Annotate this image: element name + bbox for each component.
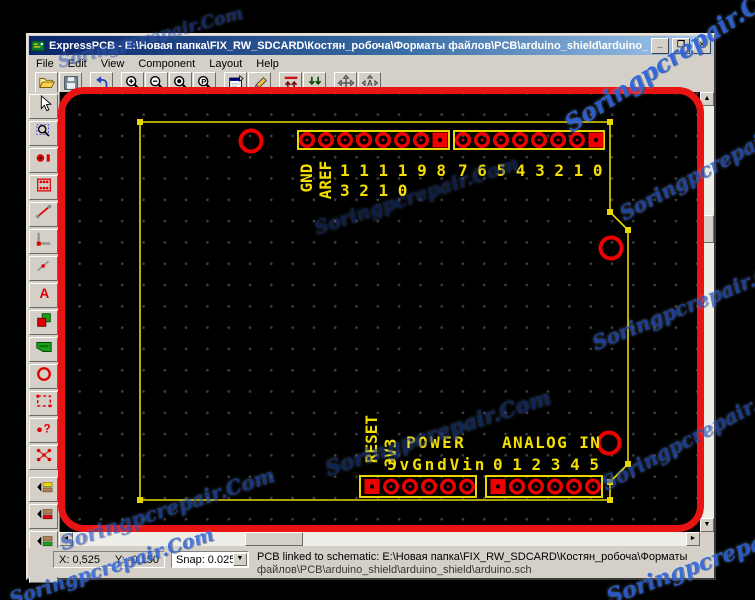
scrollbar-corner bbox=[700, 532, 714, 546]
layer-silkscreen-button[interactable] bbox=[29, 477, 58, 502]
pad bbox=[476, 134, 489, 147]
menu-view[interactable]: View bbox=[94, 56, 132, 72]
tool-ratsnest-button[interactable] bbox=[29, 445, 58, 470]
text-tool-icon: A bbox=[34, 284, 54, 307]
menu-bar: File Edit View Component Layout Help bbox=[29, 55, 713, 72]
zoom-in-icon bbox=[124, 74, 142, 92]
cursor-coordinates-panel: X: 0,525 Y: -0,150 bbox=[53, 551, 165, 568]
pad bbox=[533, 134, 546, 147]
pad bbox=[552, 134, 565, 147]
zoom-board-icon bbox=[172, 74, 190, 92]
component-edit-button[interactable] bbox=[248, 72, 271, 94]
svg-text:A: A bbox=[39, 286, 49, 301]
pan-button[interactable] bbox=[334, 72, 357, 94]
segment-icon bbox=[34, 257, 54, 280]
silkscreen-layer-icon bbox=[34, 478, 54, 501]
svg-text:?: ? bbox=[43, 423, 50, 436]
pad bbox=[442, 480, 455, 493]
pad bbox=[530, 480, 543, 493]
maximize-button[interactable]: ❐ bbox=[672, 38, 690, 54]
digital-pins-right[interactable]: 7 6 5 4 3 2 1 0 bbox=[458, 161, 603, 180]
properties-dialog-icon bbox=[227, 74, 245, 92]
tool-palette: A ? bbox=[28, 92, 59, 578]
label-analog-pins[interactable]: 0 1 2 3 4 5 bbox=[493, 455, 599, 474]
pad bbox=[404, 480, 417, 493]
pad bbox=[457, 134, 470, 147]
floppy-icon bbox=[62, 74, 80, 92]
zoom-to-board-button[interactable] bbox=[169, 72, 192, 94]
zoom-previous-icon: P bbox=[196, 74, 214, 92]
tool-trace-button[interactable] bbox=[29, 202, 58, 227]
pad-square bbox=[365, 479, 380, 494]
menu-help[interactable]: Help bbox=[249, 56, 286, 72]
tool-zoom-window-button[interactable] bbox=[29, 121, 58, 146]
snap-value: Snap: 0.025" bbox=[176, 554, 239, 566]
zoom-window-icon bbox=[34, 122, 54, 145]
view-top-layer-button[interactable] bbox=[279, 72, 302, 94]
connector-bottom-left[interactable] bbox=[360, 476, 476, 497]
top-layer-arrows-icon bbox=[282, 74, 300, 92]
pad bbox=[339, 134, 352, 147]
scroll-down-button[interactable]: ▼ bbox=[700, 518, 714, 532]
pan-auto-button[interactable]: A bbox=[358, 72, 381, 94]
menu-file[interactable]: File bbox=[29, 56, 61, 72]
tool-board-outline-button[interactable] bbox=[29, 391, 58, 416]
label-power-pins[interactable]: 5vGndVin bbox=[387, 455, 487, 474]
bottom-layer-arrows-icon bbox=[306, 74, 324, 92]
zoom-previous-button[interactable]: P bbox=[193, 72, 216, 94]
scroll-right-button[interactable]: ► bbox=[686, 532, 700, 546]
pad-icon bbox=[34, 149, 54, 172]
open-folder-icon bbox=[38, 74, 56, 92]
status-message-line2: файлов\PCB\arduino_shield\arduino_shield… bbox=[257, 564, 710, 576]
digital-pins-row1[interactable]: 1 1 1 1 9 8 bbox=[340, 161, 446, 180]
cursor-y: Y: -0,150 bbox=[115, 554, 159, 566]
top-copper-layer-icon bbox=[34, 505, 54, 528]
find-pad-icon: ? bbox=[34, 419, 54, 442]
pad bbox=[377, 134, 390, 147]
snap-grid-dropdown[interactable]: Snap: 0.025" ▼ bbox=[171, 551, 249, 568]
pad bbox=[415, 134, 428, 147]
zoom-out-icon bbox=[148, 74, 166, 92]
label-aref[interactable]: AREF bbox=[316, 161, 335, 200]
pcb-canvas[interactable]: GND AREF 1 1 1 1 9 8 3 2 1 0 7 6 5 4 3 2… bbox=[59, 92, 700, 532]
pad bbox=[549, 480, 562, 493]
dropdown-arrow-icon[interactable]: ▼ bbox=[233, 553, 247, 566]
window-title: ExpressPCB - E:\Новая папка\FIX_RW_SDCAR… bbox=[49, 40, 648, 52]
pad-square bbox=[433, 133, 448, 148]
pencil-icon bbox=[251, 74, 269, 92]
tool-select-button[interactable] bbox=[29, 94, 58, 119]
pad bbox=[423, 480, 436, 493]
vertical-scrollbar[interactable]: ▲ ▼ bbox=[700, 92, 714, 532]
scroll-left-button[interactable]: ◄ bbox=[59, 532, 73, 546]
corner-icon bbox=[34, 230, 54, 253]
minimize-button[interactable]: _ bbox=[651, 38, 669, 54]
cursor-x: X: 0,525 bbox=[59, 554, 100, 566]
pad bbox=[514, 134, 527, 147]
pan-arrows-icon bbox=[337, 74, 355, 92]
open-button[interactable] bbox=[35, 72, 58, 94]
tool-circle-button[interactable] bbox=[29, 364, 58, 389]
tool-segment-button[interactable] bbox=[29, 256, 58, 281]
view-bottom-layer-button[interactable] bbox=[303, 72, 326, 94]
label-reset[interactable]: RESET bbox=[362, 415, 381, 463]
pad bbox=[320, 134, 333, 147]
digital-pins-row2[interactable]: 3 2 1 0 bbox=[340, 181, 407, 200]
svg-text:A: A bbox=[366, 79, 372, 88]
pad bbox=[461, 480, 474, 493]
pad bbox=[587, 480, 600, 493]
pan-auto-icon: A bbox=[361, 74, 379, 92]
connector-bottom-right[interactable] bbox=[486, 476, 602, 497]
component-footprint-icon bbox=[34, 176, 54, 199]
pad bbox=[358, 134, 371, 147]
pad-square bbox=[491, 479, 506, 494]
screenshot-root: ExpressPCB - E:\Новая папка\FIX_RW_SDCAR… bbox=[0, 0, 755, 600]
tool-component-button[interactable] bbox=[29, 175, 58, 200]
horizontal-scrollbar[interactable]: ◄ ► bbox=[59, 532, 700, 546]
tool-power-plane-button[interactable] bbox=[29, 337, 58, 362]
tool-find-pad-button[interactable]: ? bbox=[29, 418, 58, 443]
status-message-line1: PCB linked to schematic: E:\Новая папка\… bbox=[257, 551, 710, 564]
scroll-up-button[interactable]: ▲ bbox=[700, 92, 714, 106]
undo-arrow-icon bbox=[93, 74, 111, 92]
status-message: PCB linked to schematic: E:\Новая папка\… bbox=[257, 551, 710, 576]
tool-pad-button[interactable] bbox=[29, 148, 58, 173]
expresspcb-window: ExpressPCB - E:\Новая папка\FIX_RW_SDCAR… bbox=[26, 33, 716, 580]
pad bbox=[495, 134, 508, 147]
layer-top-copper-button[interactable] bbox=[29, 504, 58, 529]
zoom-out-button[interactable] bbox=[145, 72, 168, 94]
component-properties-button[interactable] bbox=[224, 72, 247, 94]
pad bbox=[385, 480, 398, 493]
pad bbox=[396, 134, 409, 147]
svg-text:P: P bbox=[201, 77, 206, 86]
pad-square bbox=[589, 133, 604, 148]
status-bar: X: 0,525 Y: -0,150 Snap: 0.025" ▼ PCB li… bbox=[29, 548, 713, 577]
tool-corner-button[interactable] bbox=[29, 229, 58, 254]
ratsnest-icon bbox=[34, 446, 54, 469]
save-button[interactable] bbox=[59, 72, 82, 94]
pad bbox=[571, 134, 584, 147]
zoom-in-button[interactable] bbox=[121, 72, 144, 94]
undo-button[interactable] bbox=[90, 72, 113, 94]
title-bar[interactable]: ExpressPCB - E:\Новая папка\FIX_RW_SDCAR… bbox=[29, 36, 713, 55]
menu-layout[interactable]: Layout bbox=[202, 56, 249, 72]
circle-tool-icon bbox=[34, 365, 54, 388]
trace-icon bbox=[34, 203, 54, 226]
board-outline-icon bbox=[34, 392, 54, 415]
pad bbox=[568, 480, 581, 493]
vertical-scroll-thumb[interactable] bbox=[700, 215, 714, 243]
toolbar: P A bbox=[29, 72, 713, 94]
app-icon bbox=[31, 39, 46, 53]
tool-text-button[interactable]: A bbox=[29, 283, 58, 308]
tool-rectangle-button[interactable] bbox=[29, 310, 58, 335]
label-gnd[interactable]: GND bbox=[297, 164, 316, 193]
select-arrow-icon bbox=[34, 95, 54, 118]
menu-edit[interactable]: Edit bbox=[61, 56, 94, 72]
rectangles-icon bbox=[34, 311, 54, 334]
connector-top-right[interactable] bbox=[454, 131, 604, 149]
horizontal-scroll-thumb[interactable] bbox=[245, 532, 303, 546]
menu-component[interactable]: Component bbox=[131, 56, 202, 72]
pad bbox=[511, 480, 524, 493]
connector-top-left[interactable] bbox=[298, 131, 449, 149]
label-power[interactable]: POWER bbox=[406, 433, 466, 452]
power-plane-icon bbox=[34, 338, 54, 361]
pad bbox=[301, 134, 314, 147]
label-analog-in[interactable]: ANALOG IN bbox=[502, 433, 601, 452]
close-button[interactable]: × bbox=[693, 38, 711, 54]
